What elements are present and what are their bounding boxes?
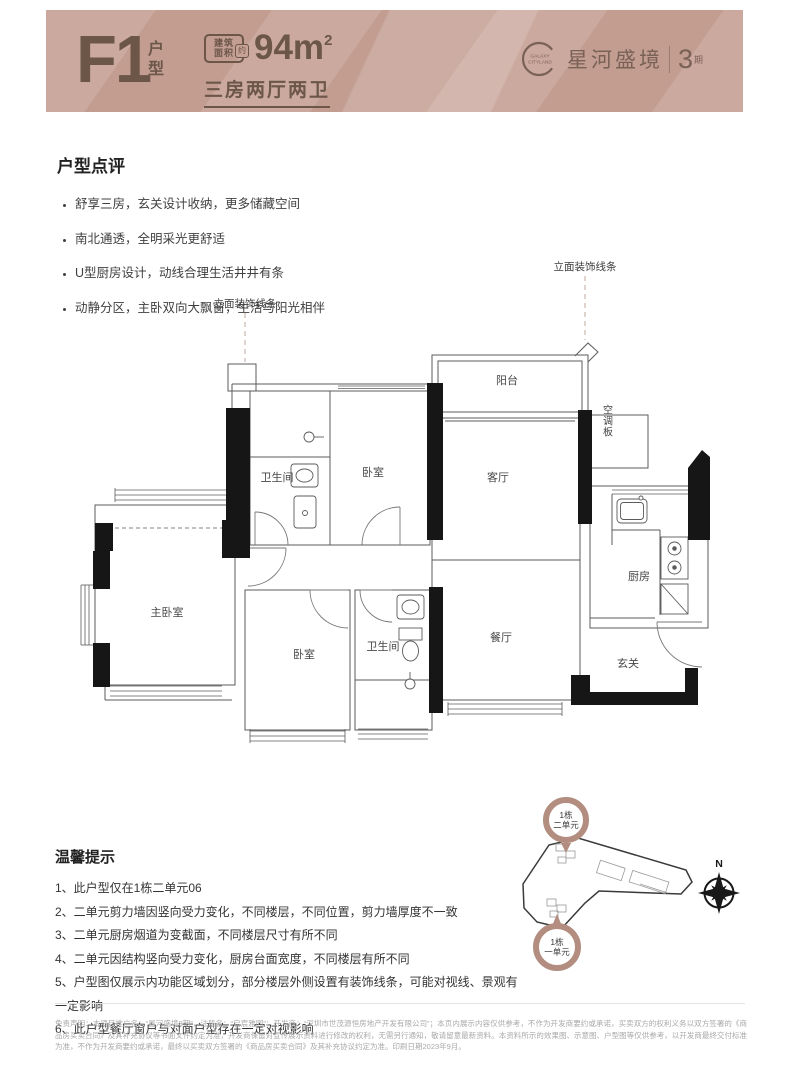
- phase-unit: 期: [694, 53, 703, 66]
- tips-item: 2、二单元剪力墙因竖向受力变化，不同楼层，不同位置，剪力墙厚度不一致: [55, 901, 525, 925]
- decor-leader-lines: [245, 276, 585, 362]
- room-label-bed2: 卧室: [293, 647, 315, 661]
- area-tag-line2: 面积: [214, 48, 234, 58]
- siteplan: 1栋 二单元 1栋 一单元 N: [490, 788, 790, 998]
- room-label-living: 客厅: [487, 470, 509, 484]
- floor-area-tag-icon: 建筑 面积 约: [204, 34, 244, 63]
- tips-item: 5、户型图仅展示内功能区域划分，部分楼层外侧设置有装饰线条，可能对视线、景观有一…: [55, 971, 525, 1018]
- floorplan: 立面装饰线条 立面装饰线条: [50, 255, 750, 785]
- unit-model-suffix: 户 型: [148, 40, 164, 80]
- toilet-bowl: [403, 641, 419, 661]
- brochure-page: F1 户 型 建筑 面积 约 94m2 三房两厅两卫 GALAXY CITYLA…: [0, 0, 800, 1085]
- room-label-balcony: 阳台: [496, 373, 518, 387]
- footer-divider: [55, 1003, 745, 1004]
- windows: [81, 386, 690, 743]
- room-label-bath1: 卫生间: [261, 470, 294, 484]
- unit1-badge-line2: 一单元: [544, 947, 570, 957]
- logo-divider: [669, 46, 670, 73]
- room-label-kitchen: 厨房: [628, 570, 650, 583]
- unit2-badge-line2: 二单元: [553, 820, 579, 830]
- building-outline: [523, 838, 692, 928]
- area-number: 94m: [254, 28, 324, 67]
- logo-ring-text-bottom: CITYLAND: [528, 60, 552, 66]
- area-approx-badge: 约: [235, 44, 249, 58]
- decor-label-right: 立面装饰线条: [554, 260, 617, 273]
- review-item: 舒享三房，玄关设计收纳，更多储藏空间: [75, 193, 537, 212]
- tips-item: 1、此户型仅在1栋二单元06: [55, 877, 525, 901]
- unit2-badge-line1: 1栋: [559, 810, 573, 820]
- room-label-foyer: 玄关: [617, 656, 639, 670]
- door-arcs: [248, 507, 702, 667]
- room-label-bed1: 卧室: [362, 465, 384, 479]
- galaxy-ring-icon: GALAXY CITYLAND: [520, 40, 558, 78]
- brand-name: 星河盛境: [567, 44, 663, 74]
- room-label-ac-panel: 空调板: [601, 403, 613, 437]
- disclaimer-text: 免责声明：本项目推广名：“星河盛境3期”，注册名：“启宸雅园”；开发商：“深圳市…: [55, 1018, 747, 1053]
- header-banner: F1 户 型 建筑 面积 约 94m2 三房两厅两卫 GALAXY CITYLA…: [46, 10, 743, 112]
- area-exponent: 2: [324, 32, 332, 49]
- toilet-tank: [399, 628, 422, 640]
- area-value: 94m2: [254, 28, 332, 68]
- brand-logo: GALAXY CITYLAND 星河盛境 3 期: [520, 40, 703, 78]
- room-label-dining: 餐厅: [490, 630, 512, 644]
- compass-n-label: N: [715, 858, 723, 870]
- unit1-badge-line1: 1栋: [550, 937, 564, 947]
- area-group: 建筑 面积 约 94m2 三房两厅两卫: [204, 28, 332, 108]
- exhaust-symbol: [405, 679, 415, 689]
- tips-item: 4、二单元因结构竖向受力变化，厨房台面宽度，不同楼层有所不同: [55, 948, 525, 972]
- unit-model-code: F1: [76, 12, 150, 108]
- tips-list: 1、此户型仅在1栋二单元06 2、二单元剪力墙因竖向受力变化，不同楼层，不同位置…: [55, 877, 525, 1042]
- decor-label-left: 立面装饰线条: [214, 297, 277, 310]
- exhaust-symbol: [304, 432, 314, 442]
- area-tag-line1: 建筑: [214, 38, 234, 48]
- logo-ring-text-top: GALAXY: [530, 54, 550, 60]
- unit-model-suffix-top: 户: [148, 40, 164, 60]
- thin-walls: [95, 343, 708, 730]
- room-label-master: 主卧室: [151, 605, 184, 619]
- tips-item: 3、二单元厨房烟道为变截面，不同楼层尺寸有所不同: [55, 924, 525, 948]
- room-label-bath2: 卫生间: [367, 639, 400, 653]
- compass-icon: N: [698, 858, 740, 914]
- tips-title: 温馨提示: [55, 846, 525, 867]
- tips-section: 温馨提示 1、此户型仅在1栋二单元06 2、二单元剪力墙因竖向受力变化，不同楼层…: [55, 846, 525, 1042]
- phase-number: 3: [678, 44, 693, 75]
- review-title: 户型点评: [57, 152, 537, 177]
- layout-subtitle: 三房两厅两卫: [204, 75, 330, 108]
- unit-model-suffix-bottom: 型: [148, 60, 164, 80]
- review-item: 南北通透，全明采光更舒适: [75, 228, 537, 247]
